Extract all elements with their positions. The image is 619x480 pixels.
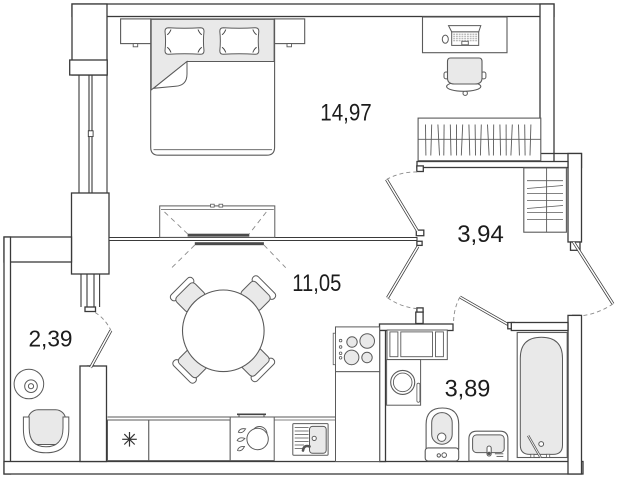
svg-text:14,97: 14,97	[320, 100, 372, 127]
svg-text:11,05: 11,05	[292, 270, 341, 297]
svg-text:3,89: 3,89	[445, 375, 491, 402]
svg-text:2,39: 2,39	[28, 326, 72, 352]
svg-text:3,94: 3,94	[457, 221, 504, 248]
